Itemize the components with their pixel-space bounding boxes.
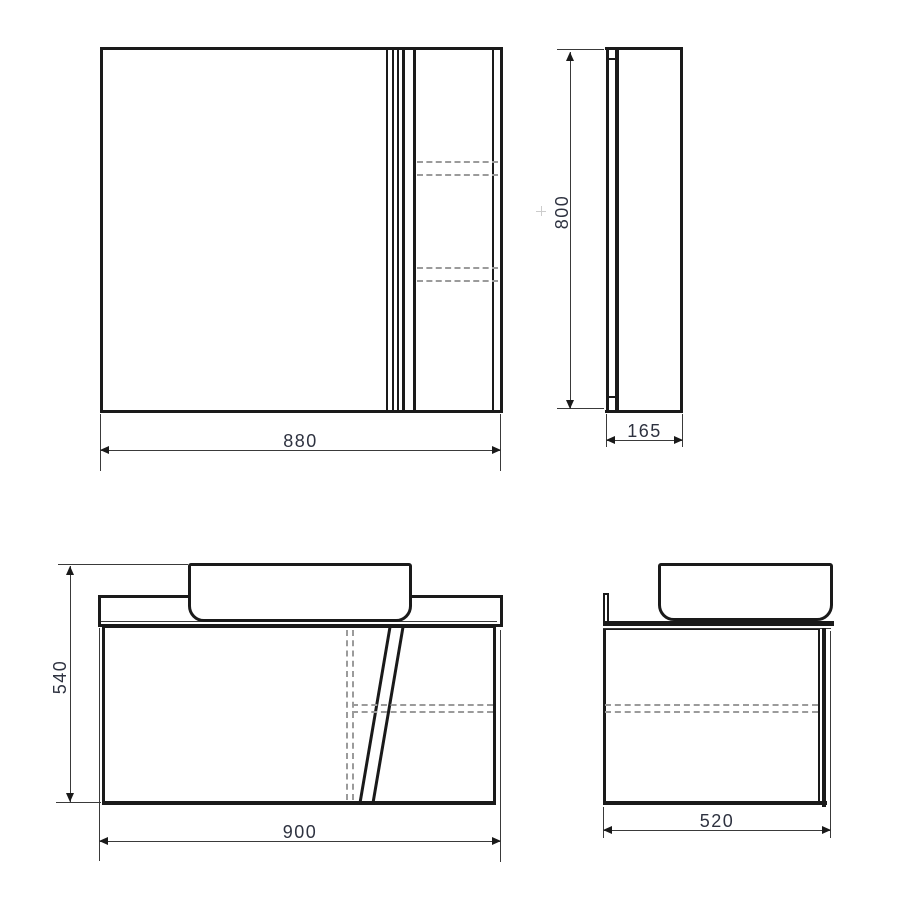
- door-profile-line: [822, 628, 826, 807]
- cabinet-bottom-edge: [603, 801, 827, 805]
- wall-upstand: [603, 593, 609, 621]
- extension-line: [830, 631, 831, 838]
- hidden-shelf-dashed-line: [605, 711, 818, 713]
- basin-outline: [658, 563, 833, 621]
- drawing-canvas: 880 800 165: [0, 0, 900, 900]
- cabinet-outline: [603, 629, 820, 802]
- countertop-slab: [603, 621, 834, 626]
- dimension-label-vanity-depth: 520: [603, 811, 831, 831]
- vanity-side-view: 520: [0, 0, 900, 900]
- hidden-shelf-dashed-line: [605, 704, 818, 706]
